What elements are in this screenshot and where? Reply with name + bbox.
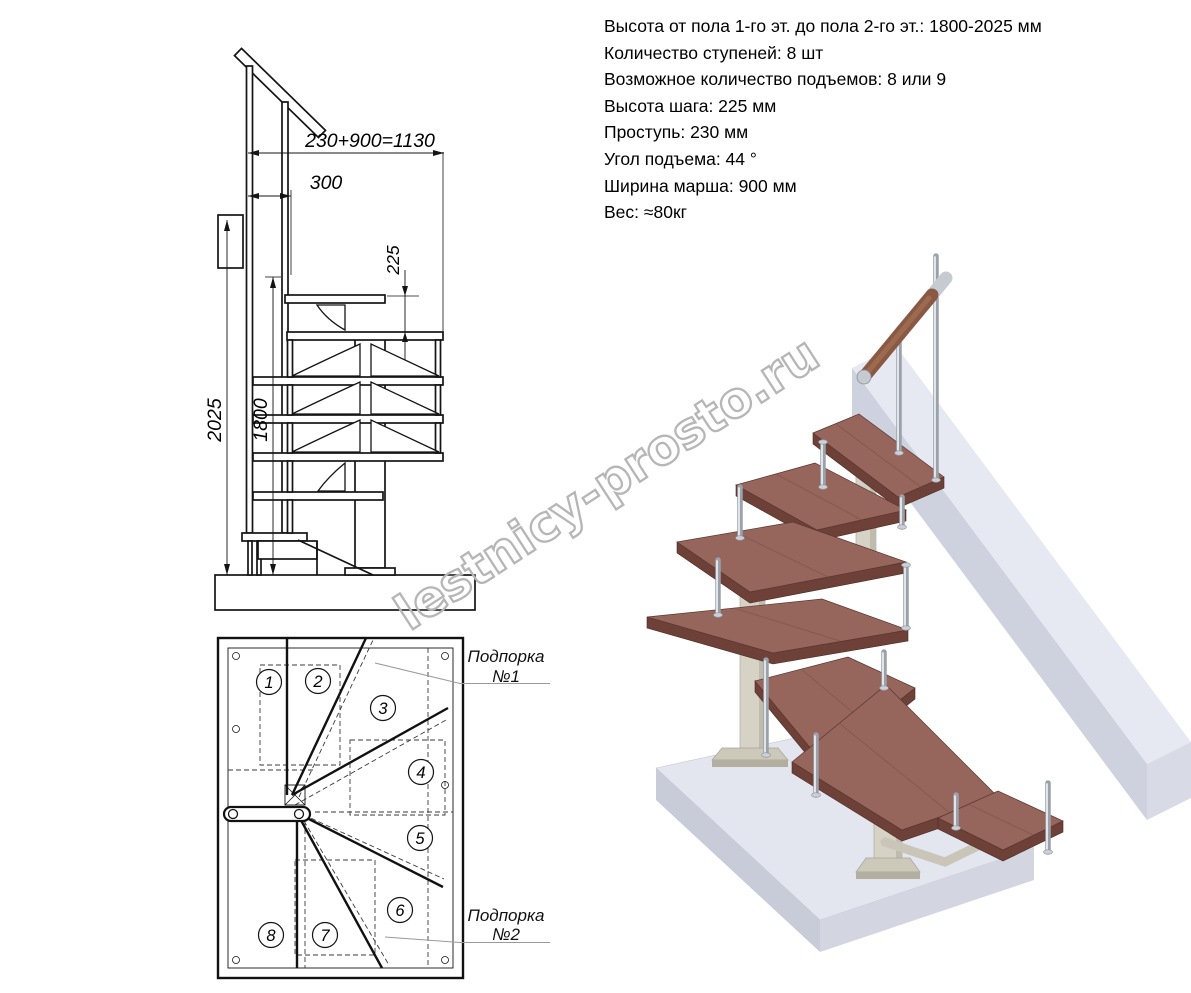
step-number-8: 8 xyxy=(266,927,276,945)
spec-line-width: Ширина марша: 900 мм xyxy=(604,173,1164,200)
specs-panel: Высота от пола 1-го эт. до пола 2-го эт.… xyxy=(604,13,1164,226)
dimension-height-min: 1800 xyxy=(250,277,281,575)
spec-line-weight: Вес: ≈80кг xyxy=(604,199,1164,226)
step-number-5: 5 xyxy=(415,830,425,848)
spec-line-step-height: Высота шага: 225 мм xyxy=(604,93,1164,120)
step-number-7: 7 xyxy=(320,927,330,945)
elevation-floor xyxy=(215,575,475,610)
page: Высота от пола 1-го эт. до пола 2-го эт.… xyxy=(0,0,1191,993)
step-number-6: 6 xyxy=(395,902,405,920)
plan-drawing: 1 2 3 4 5 6 7 8 Подпорка №1 Подпорка №2 xyxy=(200,625,600,993)
support-1-title: Подпорка xyxy=(468,647,545,666)
dimension-height-min-label: 1800 xyxy=(250,398,272,442)
dimension-top-run-label: 300 xyxy=(310,172,343,194)
handrail-end-cap xyxy=(857,370,871,384)
step-number-1: 1 xyxy=(264,674,273,692)
support-2-number: №2 xyxy=(492,925,520,944)
elevation-steps xyxy=(242,295,443,541)
spec-line-tread: Проступь: 230 мм xyxy=(604,119,1164,146)
support-1-number: №1 xyxy=(492,667,520,686)
dimension-riser: 225 xyxy=(383,245,419,360)
elevation-drawing: 230+900=1130 300 225 2025 xyxy=(195,30,495,620)
spec-line-height-range: Высота от пола 1-го эт. до пола 2-го эт.… xyxy=(604,13,1164,40)
dimension-total-label: 230+900=1130 xyxy=(304,130,435,152)
step-number-3: 3 xyxy=(378,700,388,718)
dimension-riser-label: 225 xyxy=(383,245,403,275)
spec-line-step-count: Количество ступеней: 8 шт xyxy=(604,40,1164,67)
elevation-floor2-slab xyxy=(218,215,243,268)
elevation-post-1 xyxy=(247,66,253,533)
spec-line-angle: Угол подъема: 44 ° xyxy=(604,146,1164,173)
step-number-4: 4 xyxy=(416,764,425,782)
dimension-top-run: 300 xyxy=(248,172,342,275)
staircase-3d-render xyxy=(620,240,1191,993)
dimension-height-max-label: 2025 xyxy=(204,398,226,443)
dimension-height-max: 2025 xyxy=(204,220,230,575)
support-2-title: Подпорка xyxy=(468,906,545,925)
step-number-2: 2 xyxy=(312,673,322,691)
spec-line-rise-count: Возможное количество подъемов: 8 или 9 xyxy=(604,66,1164,93)
plan-support-bar xyxy=(224,807,310,821)
tread-5 xyxy=(647,599,908,664)
